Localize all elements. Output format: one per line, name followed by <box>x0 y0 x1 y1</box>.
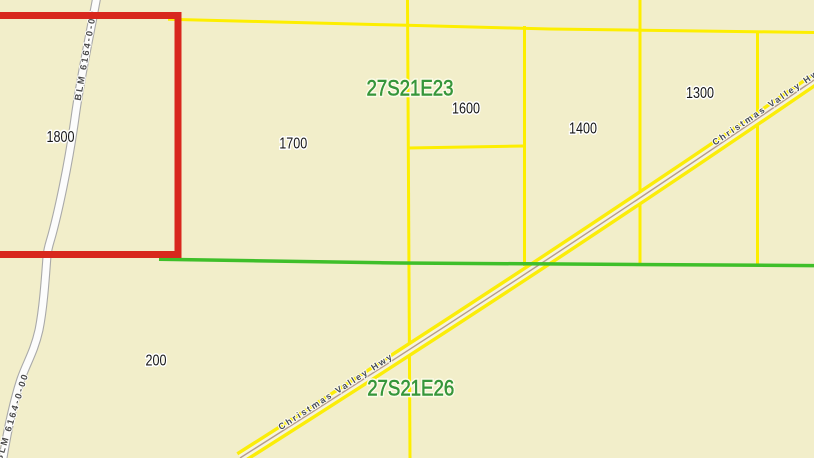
svg-text:27S21E23: 27S21E23 <box>367 75 454 100</box>
svg-text:200: 200 <box>146 352 167 369</box>
svg-text:1700: 1700 <box>279 135 307 152</box>
svg-text:1300: 1300 <box>686 85 714 102</box>
svg-text:1400: 1400 <box>569 121 597 138</box>
svg-text:1600: 1600 <box>452 101 480 118</box>
svg-text:1800: 1800 <box>47 129 75 146</box>
svg-text:27S21E26: 27S21E26 <box>367 375 454 400</box>
